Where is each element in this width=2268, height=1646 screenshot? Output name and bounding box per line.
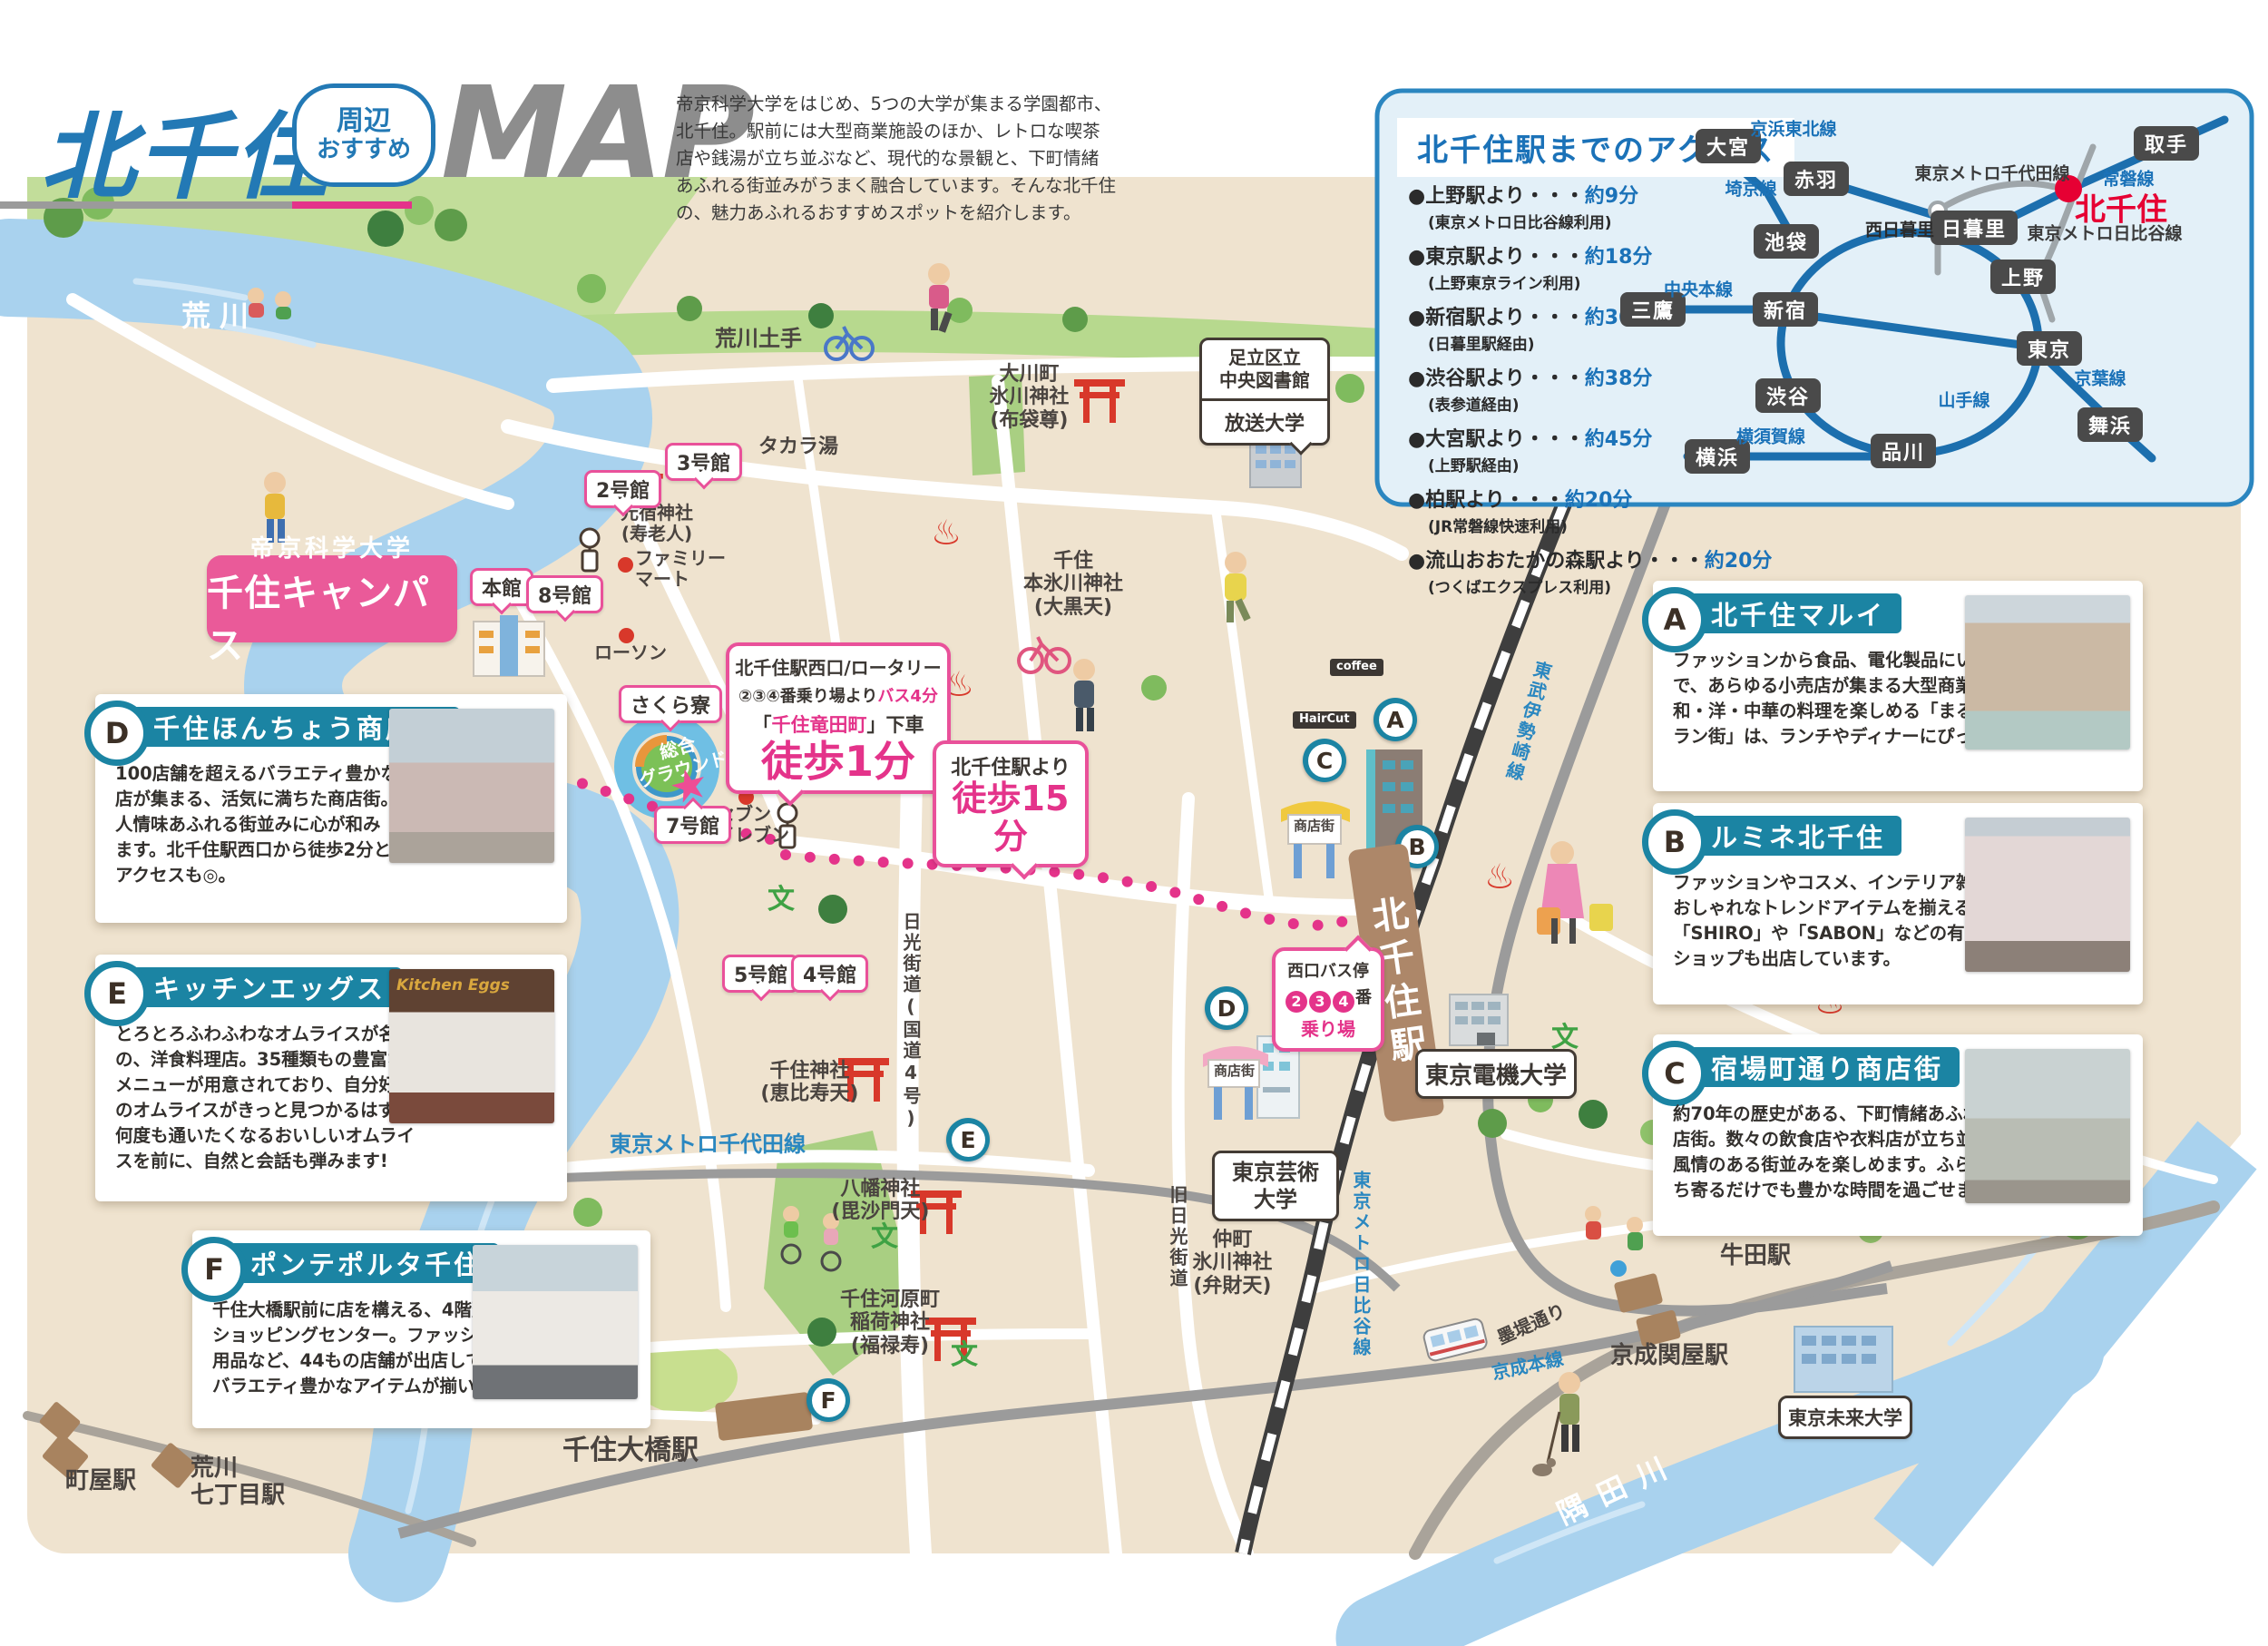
spot-card-header: Bルミネ北千住: [1667, 816, 1901, 856]
building-tag-8号館: 8号館: [526, 575, 603, 613]
spot-badge-D: D: [84, 701, 150, 766]
diagram-line-label: 東京メトロ千代田線: [1914, 161, 2069, 185]
route-main-text: ●渋谷駅より・・・約38分: [1408, 367, 1652, 390]
map-pin-letter: D: [1210, 992, 1244, 1025]
kitasenju-map-poster: 北千住 周辺 おすすめ MAP 帝京科学大学をはじめ、5つの大学が集まる学園都市…: [0, 0, 2268, 1646]
route-sub-text: (JR常磐線快速利用): [1428, 514, 1880, 536]
building-tag-3号館: 3号館: [665, 443, 742, 481]
west-exit-bus-callout: 西口バス停 234番 乗り場: [1272, 947, 1384, 1052]
diagram-station-西日暮里: 西日暮里: [1865, 217, 1934, 241]
diagram-station-上野: 上野: [1990, 260, 2056, 294]
map-label: 千住 本氷川神社 (大黒天): [1023, 550, 1123, 619]
diagram-station-舞浜: 舞浜: [2077, 407, 2143, 442]
spot-card-A: A北千住マルイファッションから食品、電化製品にいたるま で、あらゆる小売店が集ま…: [1653, 581, 2143, 791]
diagram-line-label: 中央本線: [1664, 277, 1733, 301]
spot-title: キッチンエッグス: [153, 968, 386, 1006]
diagram-station-東京: 東京: [2017, 331, 2082, 366]
photo-d: [389, 709, 554, 863]
onsen-icon: ♨: [931, 513, 962, 553]
spot-badge-E: E: [84, 961, 150, 1026]
spot-badge-A: A: [1642, 587, 1707, 652]
bus-access-line3: 「千住竜田町」下車: [735, 710, 942, 738]
map-label: 東京メトロ千代田線: [610, 1132, 806, 1158]
divider-gray: [0, 201, 292, 209]
map-label: 元宿神社 (寿老人): [621, 503, 693, 544]
spot-badge-C: C: [1642, 1041, 1707, 1106]
map-label: ローソン: [594, 642, 667, 663]
logo-kitasenju: 北千住: [41, 80, 329, 217]
map-pin-C: C: [1303, 739, 1346, 782]
campus-name: 千住キャンパス: [207, 563, 457, 669]
access-route-item: ●大宮駅より・・・約45分(上野駅経由): [1408, 423, 1880, 475]
building-tag-さくら寮: さくら寮: [619, 685, 722, 723]
route-main-text: ●流山おおたかの森駅より・・・約20分: [1408, 550, 1772, 573]
map-label: 大川町 氷川神社 (布袋尊): [989, 363, 1069, 432]
intro-paragraph: 帝京科学大学をはじめ、5つの大学が集まる学園都市、 北千住。駅前には大型商業施設…: [676, 91, 1129, 227]
diagram-station-渋谷: 渋谷: [1755, 378, 1821, 413]
main-hall-building: [474, 615, 544, 676]
diagram-line-label: 常磐線: [2102, 166, 2154, 191]
onsen-icon: ♨: [1484, 857, 1515, 896]
open-university-name: 放送大学: [1202, 401, 1327, 443]
spot-description: 100店舗を超えるバラエティ豊かな 店が集まる、活気に満ちた商店街。 人情味あふ…: [115, 761, 408, 888]
school-icon: 文: [871, 1214, 898, 1254]
walk15-line1: 北千住駅より: [942, 751, 1080, 780]
route-sub-text: (日暮里駅経由): [1428, 331, 1880, 354]
photo-c: [1965, 1049, 2130, 1203]
map-label: 仲町 氷川神社 (弁財天): [1192, 1229, 1272, 1298]
map-pin-F: F: [807, 1378, 850, 1422]
bus-access-callout: 北千住駅西口/ロータリー ②③④番乗り場よりバス4分 「千住竜田町」下車 徒歩1…: [726, 642, 951, 794]
diagram-station-池袋: 池袋: [1754, 224, 1819, 259]
west-exit-line1: 西口バス停: [1281, 958, 1375, 982]
spot-title: ルミネ北千住: [1711, 817, 1885, 855]
photo-e: Kitchen Eggs: [389, 969, 554, 1123]
walk15-line2: 徒歩15分: [942, 780, 1080, 857]
map-pin-A: A: [1374, 698, 1417, 741]
building-tag-2号館: 2号館: [584, 470, 661, 508]
route-time: 約18分: [1585, 246, 1653, 269]
map-pin-letter: E: [952, 1123, 985, 1157]
map-label: 東京メトロ日比谷線: [1350, 1171, 1371, 1358]
map-label: HairCut: [1293, 711, 1356, 729]
map-pin-D: D: [1205, 986, 1248, 1030]
diagram-line-label: 京葉線: [2074, 366, 2126, 390]
diagram-station-日暮里: 日暮里: [1931, 211, 2018, 245]
west-exit-line2: 234番: [1281, 985, 1375, 1013]
school-icon: 文: [951, 1332, 978, 1372]
map-label: 商店街: [1214, 1063, 1255, 1079]
bubble-line2: おすすめ: [317, 136, 411, 163]
route-time: 約20分: [1705, 550, 1773, 573]
diagram-station-新宿: 新宿: [1753, 292, 1818, 327]
photo-a: [1965, 595, 2130, 750]
diagram-line-label: 横須賀線: [1736, 424, 1805, 448]
map-label: 旧日光街道: [1167, 1185, 1188, 1289]
map-label: 荒川: [181, 299, 258, 333]
route-sub-text: (上野東京ライン利用): [1428, 270, 1880, 293]
diagram-station-取手: 取手: [2134, 126, 2199, 161]
spot-card-F: Fポンテポルタ千住千住大橋駅前に店を構える、4階建ての ショッピングセンター。フ…: [192, 1230, 650, 1428]
mirai-callout: 東京未来大学: [1778, 1396, 1912, 1439]
diagram-station-品川: 品川: [1871, 434, 1936, 468]
diagram-line-label: 東京メトロ日比谷線: [2027, 220, 2182, 245]
spot-card-E: Eキッチンエッグスとろとろふわふわなオムライスが名物 の、洋食料理店。35種類も…: [95, 955, 567, 1201]
access-route-item: ●柏駅より・・・約20分(JR常磐線快速利用): [1408, 484, 1880, 536]
diagram-line-label: 山手線: [1938, 387, 1989, 412]
west-exit-line3: 乗り場: [1281, 1014, 1375, 1041]
route-time: 約9分: [1585, 185, 1638, 208]
bus-access-line1: 北千住駅西口/ロータリー: [735, 653, 942, 680]
school-icon: 文: [767, 877, 795, 916]
route-sub-text: (上野駅経由): [1428, 453, 1880, 475]
map-label: 荒川土手: [715, 327, 802, 352]
map-label: 荒川 七丁目駅: [191, 1455, 285, 1510]
mirai-building: [1794, 1327, 1892, 1392]
route-main-text: ●大宮駅より・・・約45分: [1408, 428, 1652, 451]
map-label: coffee: [1330, 659, 1383, 676]
map-pin-letter: F: [812, 1384, 846, 1417]
building-tag-4号館: 4号館: [791, 955, 868, 993]
route-time: 約38分: [1585, 367, 1653, 390]
spot-title: 北千住マルイ: [1711, 594, 1885, 632]
logo-speech-bubble: 周辺 おすすめ: [292, 83, 435, 187]
map-pin-letter: C: [1308, 744, 1342, 778]
spot-card-B: Bルミネ北千住ファッションやコスメ、インテリア雑貨など、 おしゃれなトレンドアイ…: [1653, 803, 2143, 1004]
bus-access-walk1: 徒歩1分: [735, 740, 942, 783]
map-label: タカラ湯: [758, 436, 838, 458]
spot-title: ポンテポルタ千住: [250, 1244, 483, 1282]
spot-card-header: A北千住マルイ: [1667, 593, 1901, 633]
bus-access-line2: ②③④番乗り場よりバス4分: [735, 683, 942, 707]
map-label: 町屋駅: [65, 1468, 136, 1495]
photo-b: [1965, 818, 2130, 972]
building-tag-本館: 本館: [470, 568, 533, 606]
route-main-text: ●上野駅より・・・約9分: [1408, 185, 1638, 208]
spot-card-C: C宿場町通り商店街約70年の歴史がある、下町情緒あふれる商 店街。数々の飲食店や…: [1653, 1034, 2143, 1236]
map-label: ファミリー マート: [635, 548, 726, 590]
store-dot-icon: [619, 628, 634, 643]
spot-card-header: Fポンテポルタ千住: [207, 1243, 499, 1283]
store-dot-icon: [618, 557, 633, 573]
spot-badge-B: B: [1642, 809, 1707, 875]
map-label: 商店街: [1294, 818, 1334, 834]
bubble-line1: 周辺: [337, 107, 391, 136]
map-label: 千住河原町 稲荷神社 (福禄寿): [840, 1288, 940, 1357]
map-label: 日光街道(国道4号): [900, 912, 921, 1132]
map-pin-E: E: [946, 1118, 990, 1161]
spot-card-header: Eキッチンエッグス: [110, 967, 402, 1007]
map-pin-letter: A: [1379, 703, 1413, 737]
building-tag-5号館: 5号館: [722, 955, 799, 993]
spot-description: とろとろふわふわなオムライスが名物 の、洋食料理店。35種類もの豊富な メニュー…: [115, 1022, 415, 1174]
denki-building: [1450, 994, 1508, 1045]
diagram-station-赤羽: 赤羽: [1784, 162, 1849, 196]
map-label: 牛田駅: [1720, 1243, 1791, 1270]
route-time: 約20分: [1565, 489, 1633, 512]
spot-card-D: D千住ほんちょう商店街100店舗を超えるバラエティ豊かな 店が集まる、活気に満ち…: [95, 694, 567, 923]
arakawa-dike: [544, 331, 1479, 356]
building-tag-7号館: 7号館: [654, 806, 731, 844]
map-label: 京成関屋駅: [1610, 1343, 1728, 1370]
photo-f: [473, 1245, 638, 1399]
diagram-line-label: 京浜東北線: [1750, 116, 1836, 141]
geidai-callout: 東京芸術 大学: [1212, 1151, 1339, 1221]
map-label: 千住神社 (恵比寿天): [760, 1060, 858, 1106]
campus-label: 帝京科学大学 千住キャンパス: [207, 555, 457, 642]
divider-pink: [292, 201, 412, 209]
spot-card-header: C宿場町通り商店街: [1667, 1047, 1960, 1087]
diagram-line-label: 埼京線: [1725, 176, 1776, 201]
route-main-text: ●東京駅より・・・約18分: [1408, 246, 1652, 269]
denki-callout: 東京電機大学: [1415, 1049, 1577, 1099]
library-callout: 足立区立 中央図書館 放送大学: [1199, 338, 1330, 446]
route-time: 約45分: [1585, 428, 1653, 451]
spot-title: 宿場町通り商店街: [1711, 1048, 1943, 1086]
route-main-text: ●新宿駅より・・・約30分: [1408, 307, 1652, 329]
spot-badge-F: F: [181, 1237, 247, 1302]
walk15-callout: 北千住駅より 徒歩15分: [933, 740, 1089, 867]
kitchen-eggs-sign: Kitchen Eggs: [396, 976, 510, 994]
campus-university: 帝京科学大学: [250, 530, 414, 563]
route-main-text: ●柏駅より・・・約20分: [1408, 489, 1632, 512]
map-label: 千住大橋駅: [562, 1435, 699, 1467]
library-name: 足立区立 中央図書館: [1202, 340, 1327, 401]
